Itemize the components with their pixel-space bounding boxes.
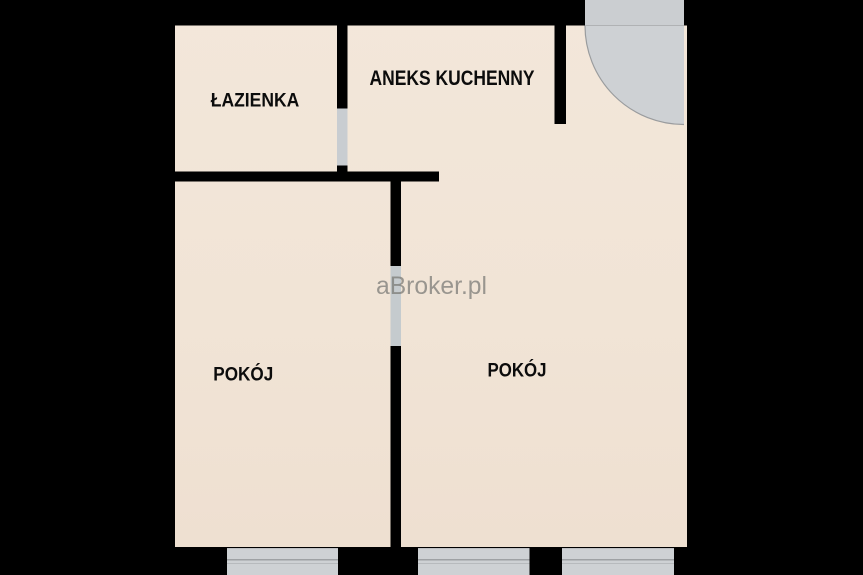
svg-text:POKÓJ: POKÓJ (488, 360, 547, 382)
svg-text:ŁAZIENKA: ŁAZIENKA (211, 90, 300, 112)
svg-text:ANEKS KUCHENNY: ANEKS KUCHENNY (370, 66, 535, 90)
svg-text:aBroker.pl: aBroker.pl (376, 272, 487, 300)
svg-text:POKÓJ: POKÓJ (213, 364, 273, 386)
